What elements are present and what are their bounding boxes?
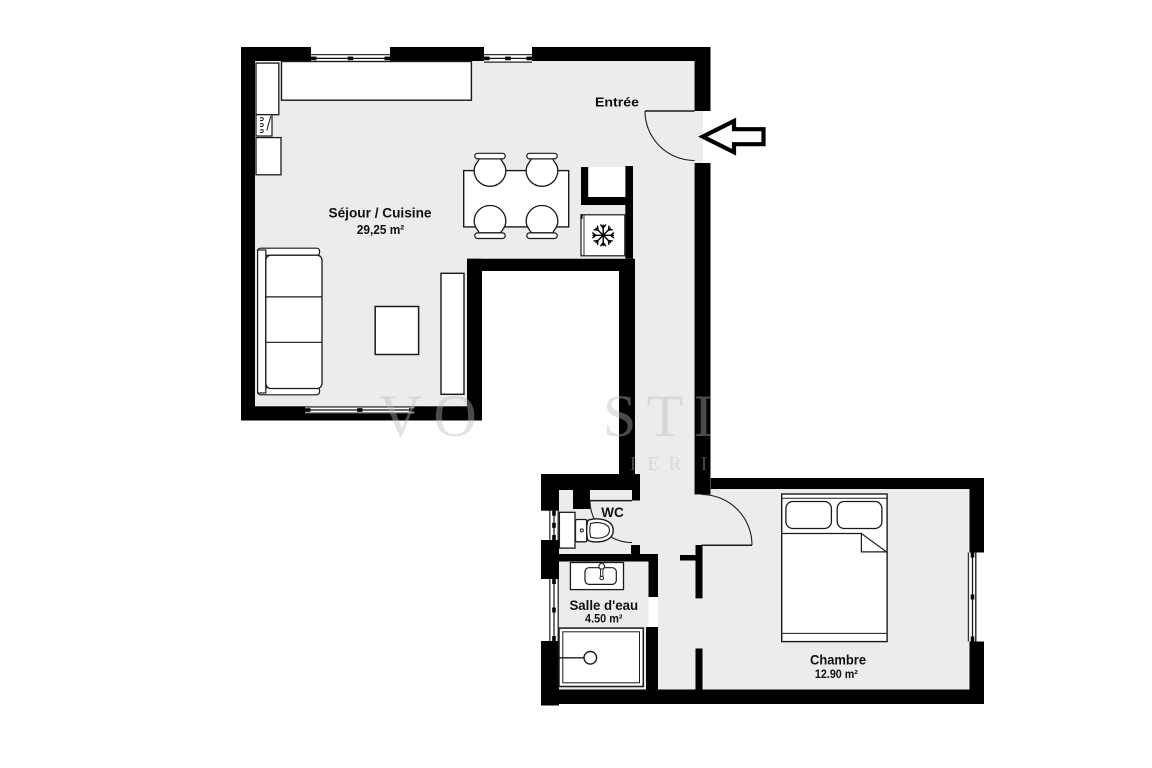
svg-text:I: I xyxy=(701,454,708,475)
svg-text:4.50 m²: 4.50 m² xyxy=(585,614,623,626)
svg-text:29,25 m²: 29,25 m² xyxy=(357,223,405,237)
svg-text:V: V xyxy=(379,383,422,449)
svg-text:E: E xyxy=(648,454,660,475)
svg-text:T: T xyxy=(647,383,684,449)
svg-text:O: O xyxy=(433,383,476,449)
svg-text:Entrée: Entrée xyxy=(595,95,639,110)
svg-text:12.90 m²: 12.90 m² xyxy=(815,669,858,681)
svg-text:I: I xyxy=(630,454,637,475)
svg-text:WC: WC xyxy=(601,504,624,520)
svg-text:S: S xyxy=(603,383,636,449)
svg-text:Chambre: Chambre xyxy=(810,653,866,668)
svg-text:Séjour / Cuisine: Séjour / Cuisine xyxy=(329,206,432,221)
svg-text:I: I xyxy=(694,383,714,449)
svg-text:Salle d'eau: Salle d'eau xyxy=(569,598,638,613)
svg-text:R: R xyxy=(668,454,681,475)
